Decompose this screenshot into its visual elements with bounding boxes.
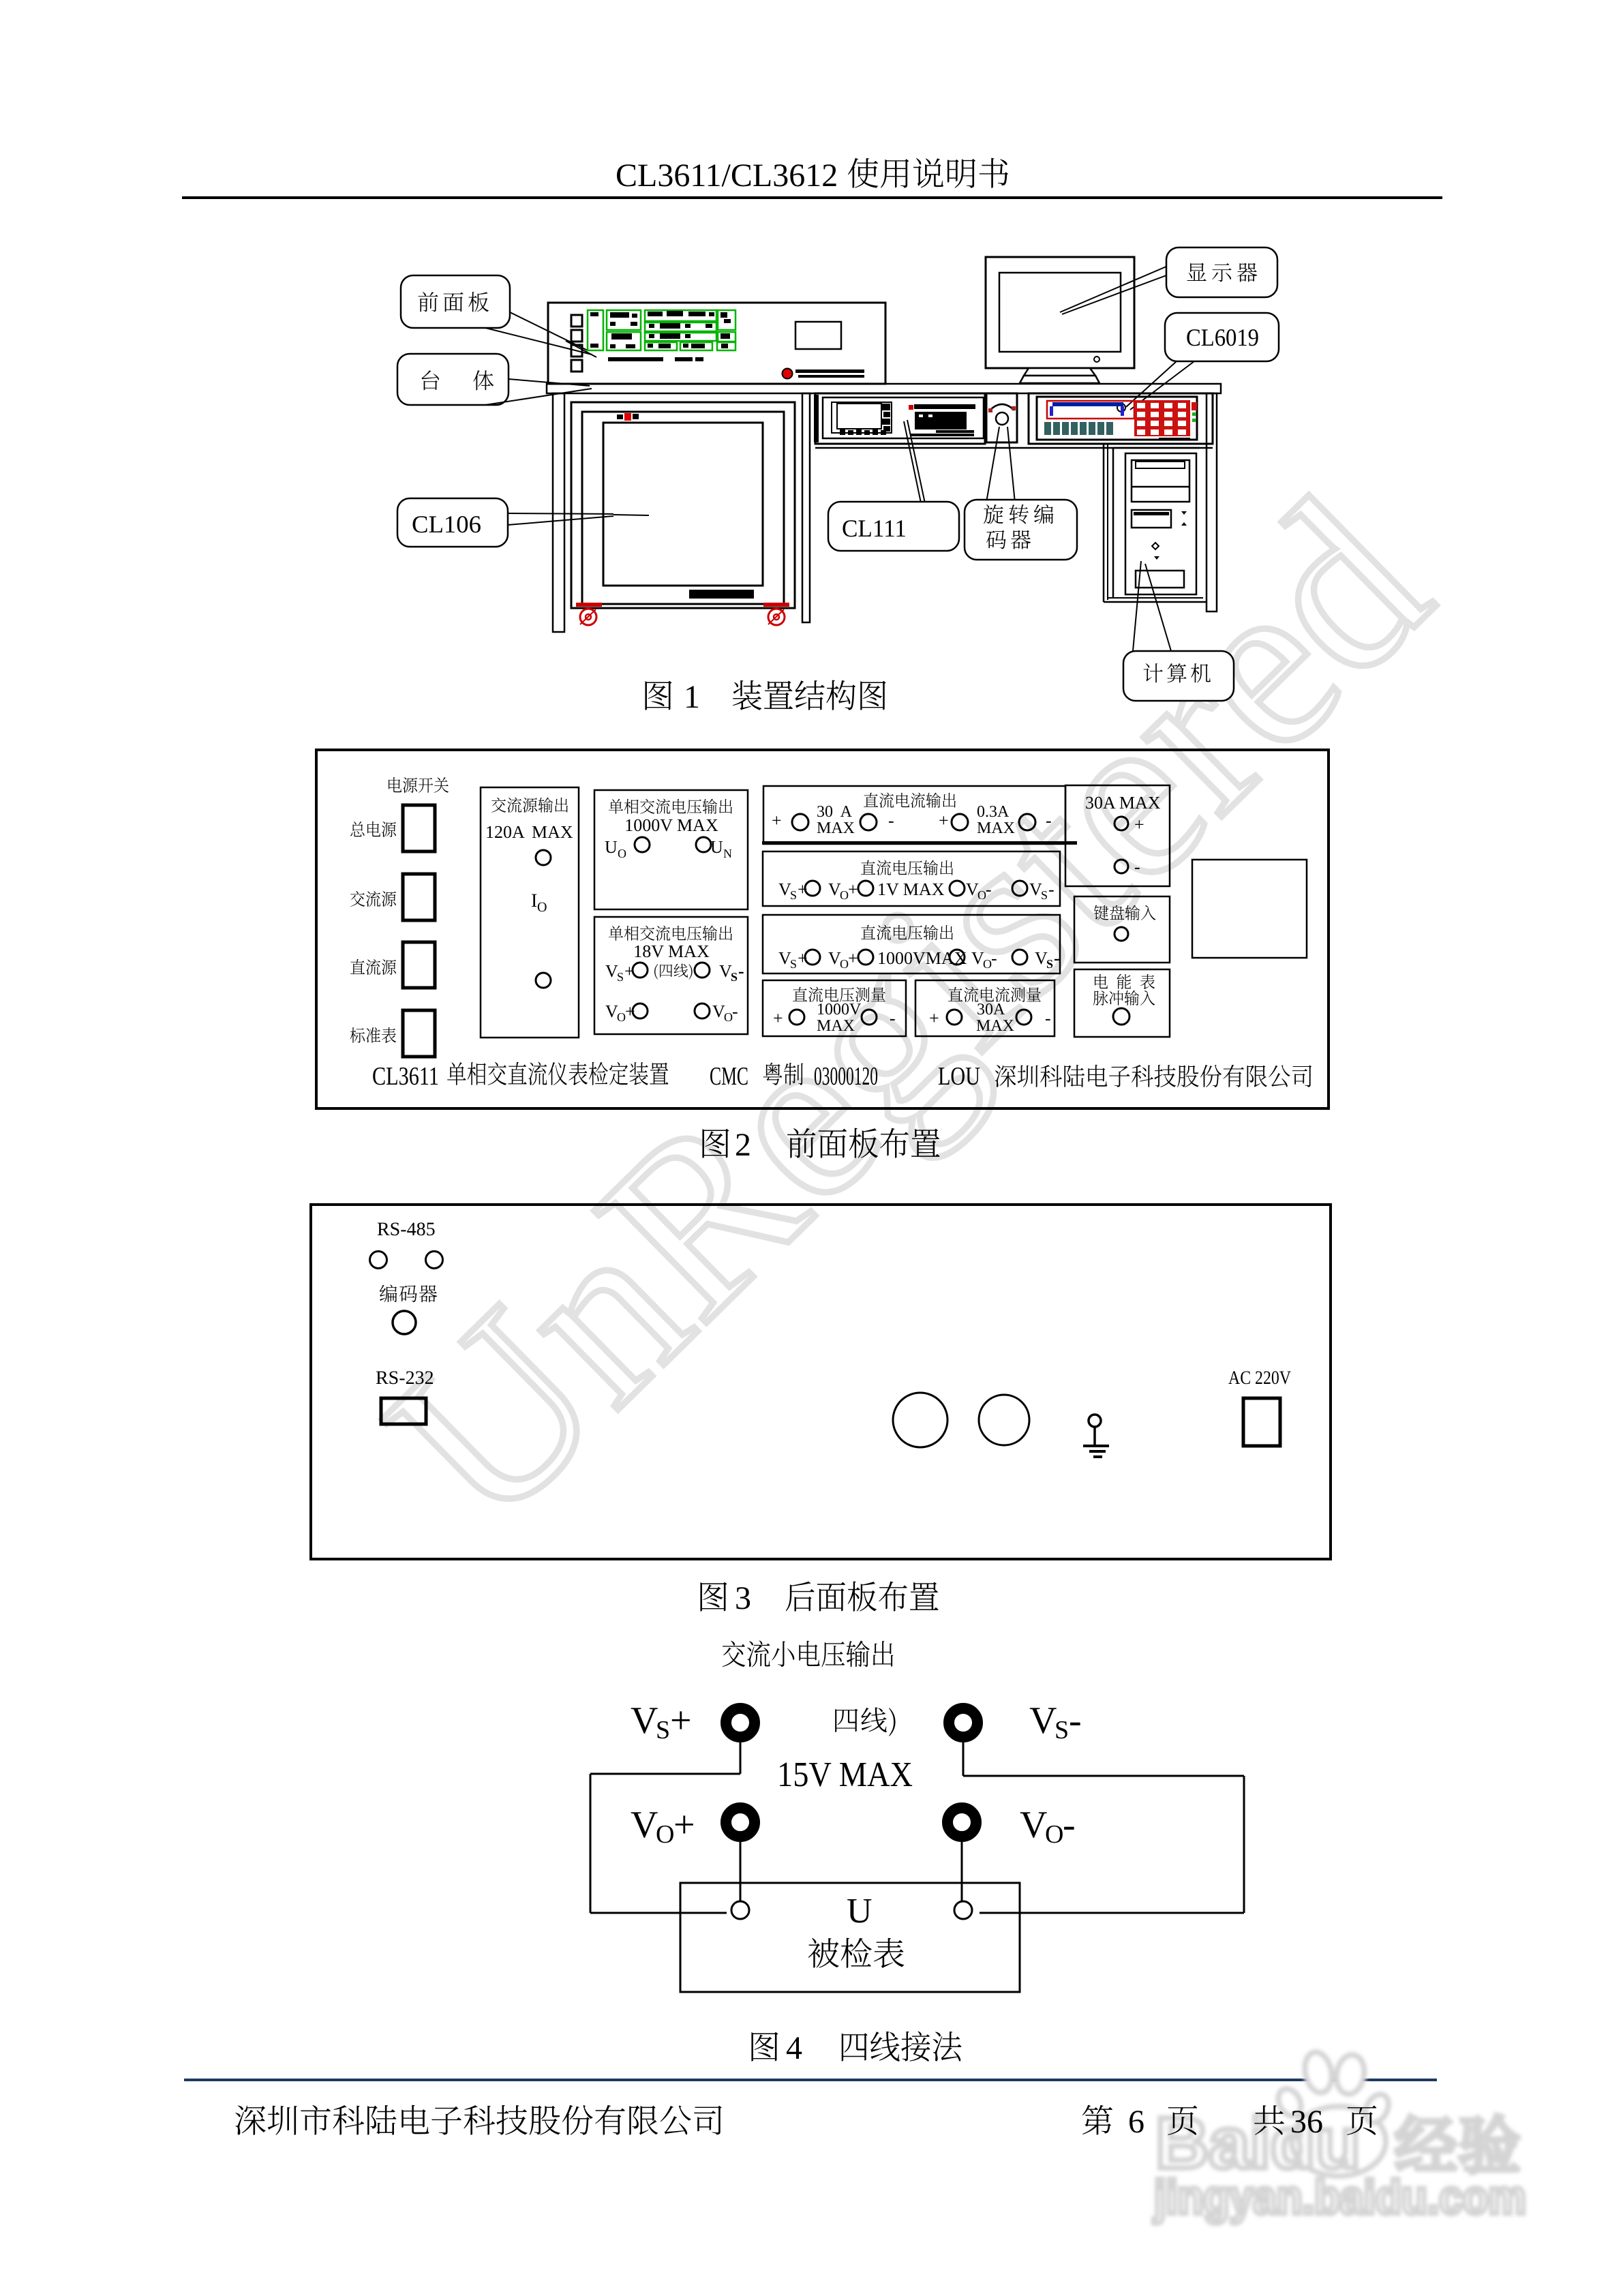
svg-text:30A MAX: 30A MAX — [1085, 793, 1161, 813]
svg-text:CL111: CL111 — [842, 515, 907, 542]
svg-text:1: 1 — [684, 679, 700, 715]
svg-text:18V MAX: 18V MAX — [633, 941, 710, 961]
svg-text:+: + — [673, 1804, 695, 1846]
svg-text:V: V — [631, 1804, 658, 1846]
svg-text:+: + — [929, 1008, 939, 1028]
svg-text:S: S — [1055, 1716, 1069, 1744]
svg-text:+: + — [670, 1700, 692, 1742]
svg-text:MAX: MAX — [976, 1017, 1014, 1035]
svg-text:-: - — [1048, 879, 1055, 899]
svg-text:AC 220V: AC 220V — [1228, 1368, 1291, 1389]
svg-text:-: - — [1054, 948, 1060, 968]
svg-text:LOU: LOU — [938, 1062, 980, 1091]
svg-text:120A: 120A — [485, 822, 525, 842]
svg-text:MAX: MAX — [977, 819, 1015, 837]
svg-text:V: V — [631, 1700, 658, 1742]
svg-text:+: + — [939, 811, 949, 830]
svg-text:6: 6 — [1128, 2104, 1144, 2140]
svg-text:+: + — [848, 948, 858, 968]
svg-text:S: S — [790, 957, 797, 971]
svg-text:N: N — [723, 847, 732, 860]
svg-text:-: - — [1134, 857, 1140, 877]
svg-text:O: O — [537, 900, 547, 915]
svg-text:S: S — [1041, 888, 1048, 902]
svg-text:+: + — [848, 879, 858, 899]
svg-text:4: 4 — [786, 2030, 802, 2066]
svg-text:30 A: 30 A — [817, 803, 853, 821]
svg-text:MAX: MAX — [817, 819, 855, 837]
svg-text:03000120: 03000120 — [814, 1062, 878, 1091]
svg-text:-: - — [1069, 1700, 1082, 1742]
svg-text:1V MAX: 1V MAX — [877, 879, 945, 899]
svg-text:MAX: MAX — [532, 822, 573, 842]
svg-text:MAX: MAX — [817, 1017, 855, 1035]
svg-text:S: S — [1046, 957, 1053, 971]
svg-text:-: - — [986, 879, 992, 899]
svg-text:CMC: CMC — [710, 1062, 748, 1091]
svg-text:0.3A: 0.3A — [977, 803, 1010, 821]
svg-text:I: I — [531, 890, 537, 911]
svg-text:1000V: 1000V — [817, 1001, 862, 1018]
svg-text:36: 36 — [1290, 2104, 1323, 2140]
svg-text:2: 2 — [735, 1127, 751, 1163]
svg-text:CL6019: CL6019 — [1186, 324, 1259, 351]
svg-text:3: 3 — [735, 1580, 751, 1616]
svg-text:O: O — [656, 1820, 674, 1849]
svg-text:O: O — [1045, 1820, 1063, 1849]
svg-text:-: - — [738, 961, 744, 981]
svg-text:CL3611: CL3611 — [372, 1062, 439, 1091]
svg-text:U: U — [710, 837, 723, 857]
svg-text:30A: 30A — [977, 1001, 1005, 1018]
svg-text:+: + — [773, 1008, 783, 1028]
svg-text:1000V MAX: 1000V MAX — [624, 815, 718, 835]
svg-text:U: U — [847, 1892, 873, 1931]
svg-text:S: S — [656, 1716, 670, 1744]
svg-text:-: - — [732, 1001, 738, 1021]
svg-text:RS-232: RS-232 — [376, 1368, 434, 1389]
svg-text:S: S — [731, 970, 738, 984]
svg-text:-: - — [1046, 811, 1052, 830]
svg-text:CL106: CL106 — [412, 511, 481, 538]
svg-text:15V MAX: 15V MAX — [777, 1755, 913, 1794]
svg-text:V: V — [1020, 1804, 1047, 1846]
svg-text:S: S — [790, 888, 797, 902]
svg-text:CL3611/CL3612: CL3611/CL3612 — [616, 157, 838, 194]
svg-text:+: + — [772, 811, 782, 830]
svg-text:V: V — [1029, 1700, 1057, 1742]
svg-text:-: - — [890, 1008, 896, 1028]
svg-text:+: + — [1134, 815, 1144, 834]
svg-text:-: - — [1063, 1804, 1076, 1846]
svg-text:-: - — [991, 948, 997, 968]
svg-text:U: U — [605, 837, 618, 857]
svg-text:RS-485: RS-485 — [377, 1219, 436, 1240]
svg-text:O: O — [618, 847, 626, 860]
svg-text:jingyan.baidu.com: jingyan.baidu.com — [1153, 2171, 1526, 2224]
svg-text:S: S — [617, 970, 624, 984]
svg-text:-: - — [888, 811, 894, 830]
svg-text:-: - — [1045, 1008, 1051, 1028]
